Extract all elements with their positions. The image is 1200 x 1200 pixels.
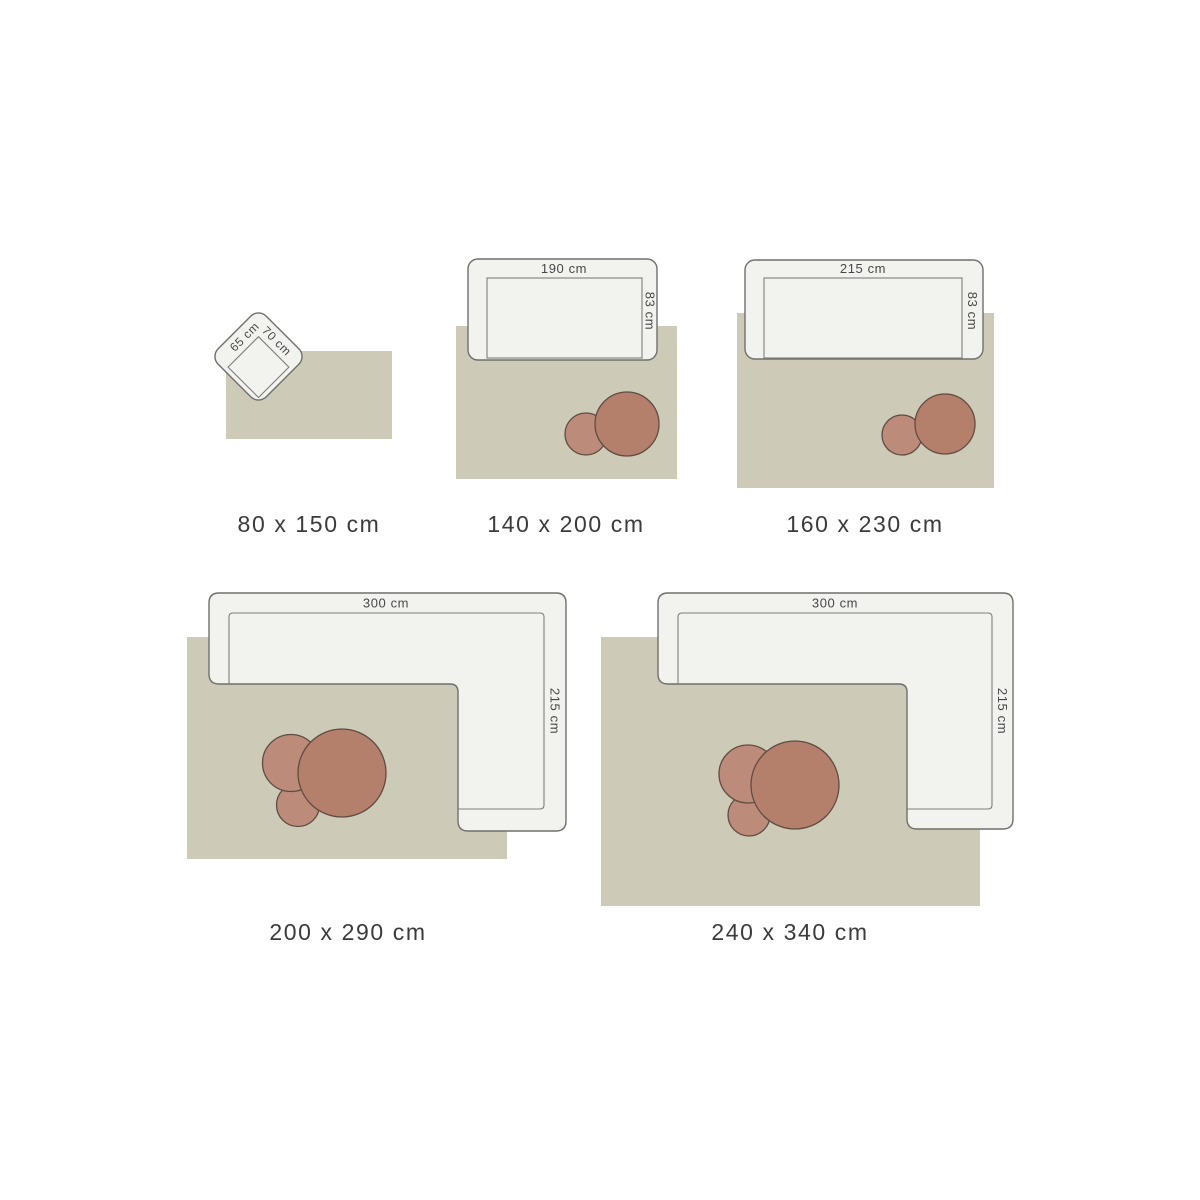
rug-option-200x290: 300 cm 215 cm 200 x 290 cm: [187, 593, 566, 945]
sofa-width-label: 190 cm: [541, 261, 587, 276]
rug-size-label: 200 x 290 cm: [269, 919, 426, 945]
rug-size-label: 160 x 230 cm: [786, 511, 943, 537]
coffee-table-large: [751, 741, 839, 829]
rug-option-80x150: 65 cm 70 cm 80 x 150 cm: [210, 308, 392, 537]
sofa-depth-label: 215 cm: [995, 688, 1010, 734]
rug-size-label: 140 x 200 cm: [487, 511, 644, 537]
sofa-width-label: 300 cm: [363, 596, 409, 611]
sofa-width-label: 300 cm: [812, 596, 858, 611]
sofa-width-label: 215 cm: [840, 261, 886, 276]
rug-option-240x340: 300 cm 215 cm 240 x 340 cm: [601, 593, 1013, 945]
rug-size-guide: 65 cm 70 cm 80 x 150 cm 190 cm 83 cm 140…: [0, 0, 1200, 1200]
sofa-depth-label: 83 cm: [965, 292, 980, 330]
rug-option-160x230: 215 cm 83 cm 160 x 230 cm: [737, 260, 994, 537]
sofa-depth-label: 215 cm: [547, 688, 562, 734]
rug-option-140x200: 190 cm 83 cm 140 x 200 cm: [456, 259, 677, 537]
rug-size-label: 80 x 150 cm: [238, 511, 381, 537]
coffee-table-large: [298, 729, 386, 817]
sofa-depth-label: 83 cm: [642, 292, 657, 330]
size-guide-canvas: 65 cm 70 cm 80 x 150 cm 190 cm 83 cm 140…: [0, 0, 1200, 1200]
coffee-table-large: [595, 392, 659, 456]
rug-size-label: 240 x 340 cm: [711, 919, 868, 945]
coffee-table-large: [915, 394, 975, 454]
